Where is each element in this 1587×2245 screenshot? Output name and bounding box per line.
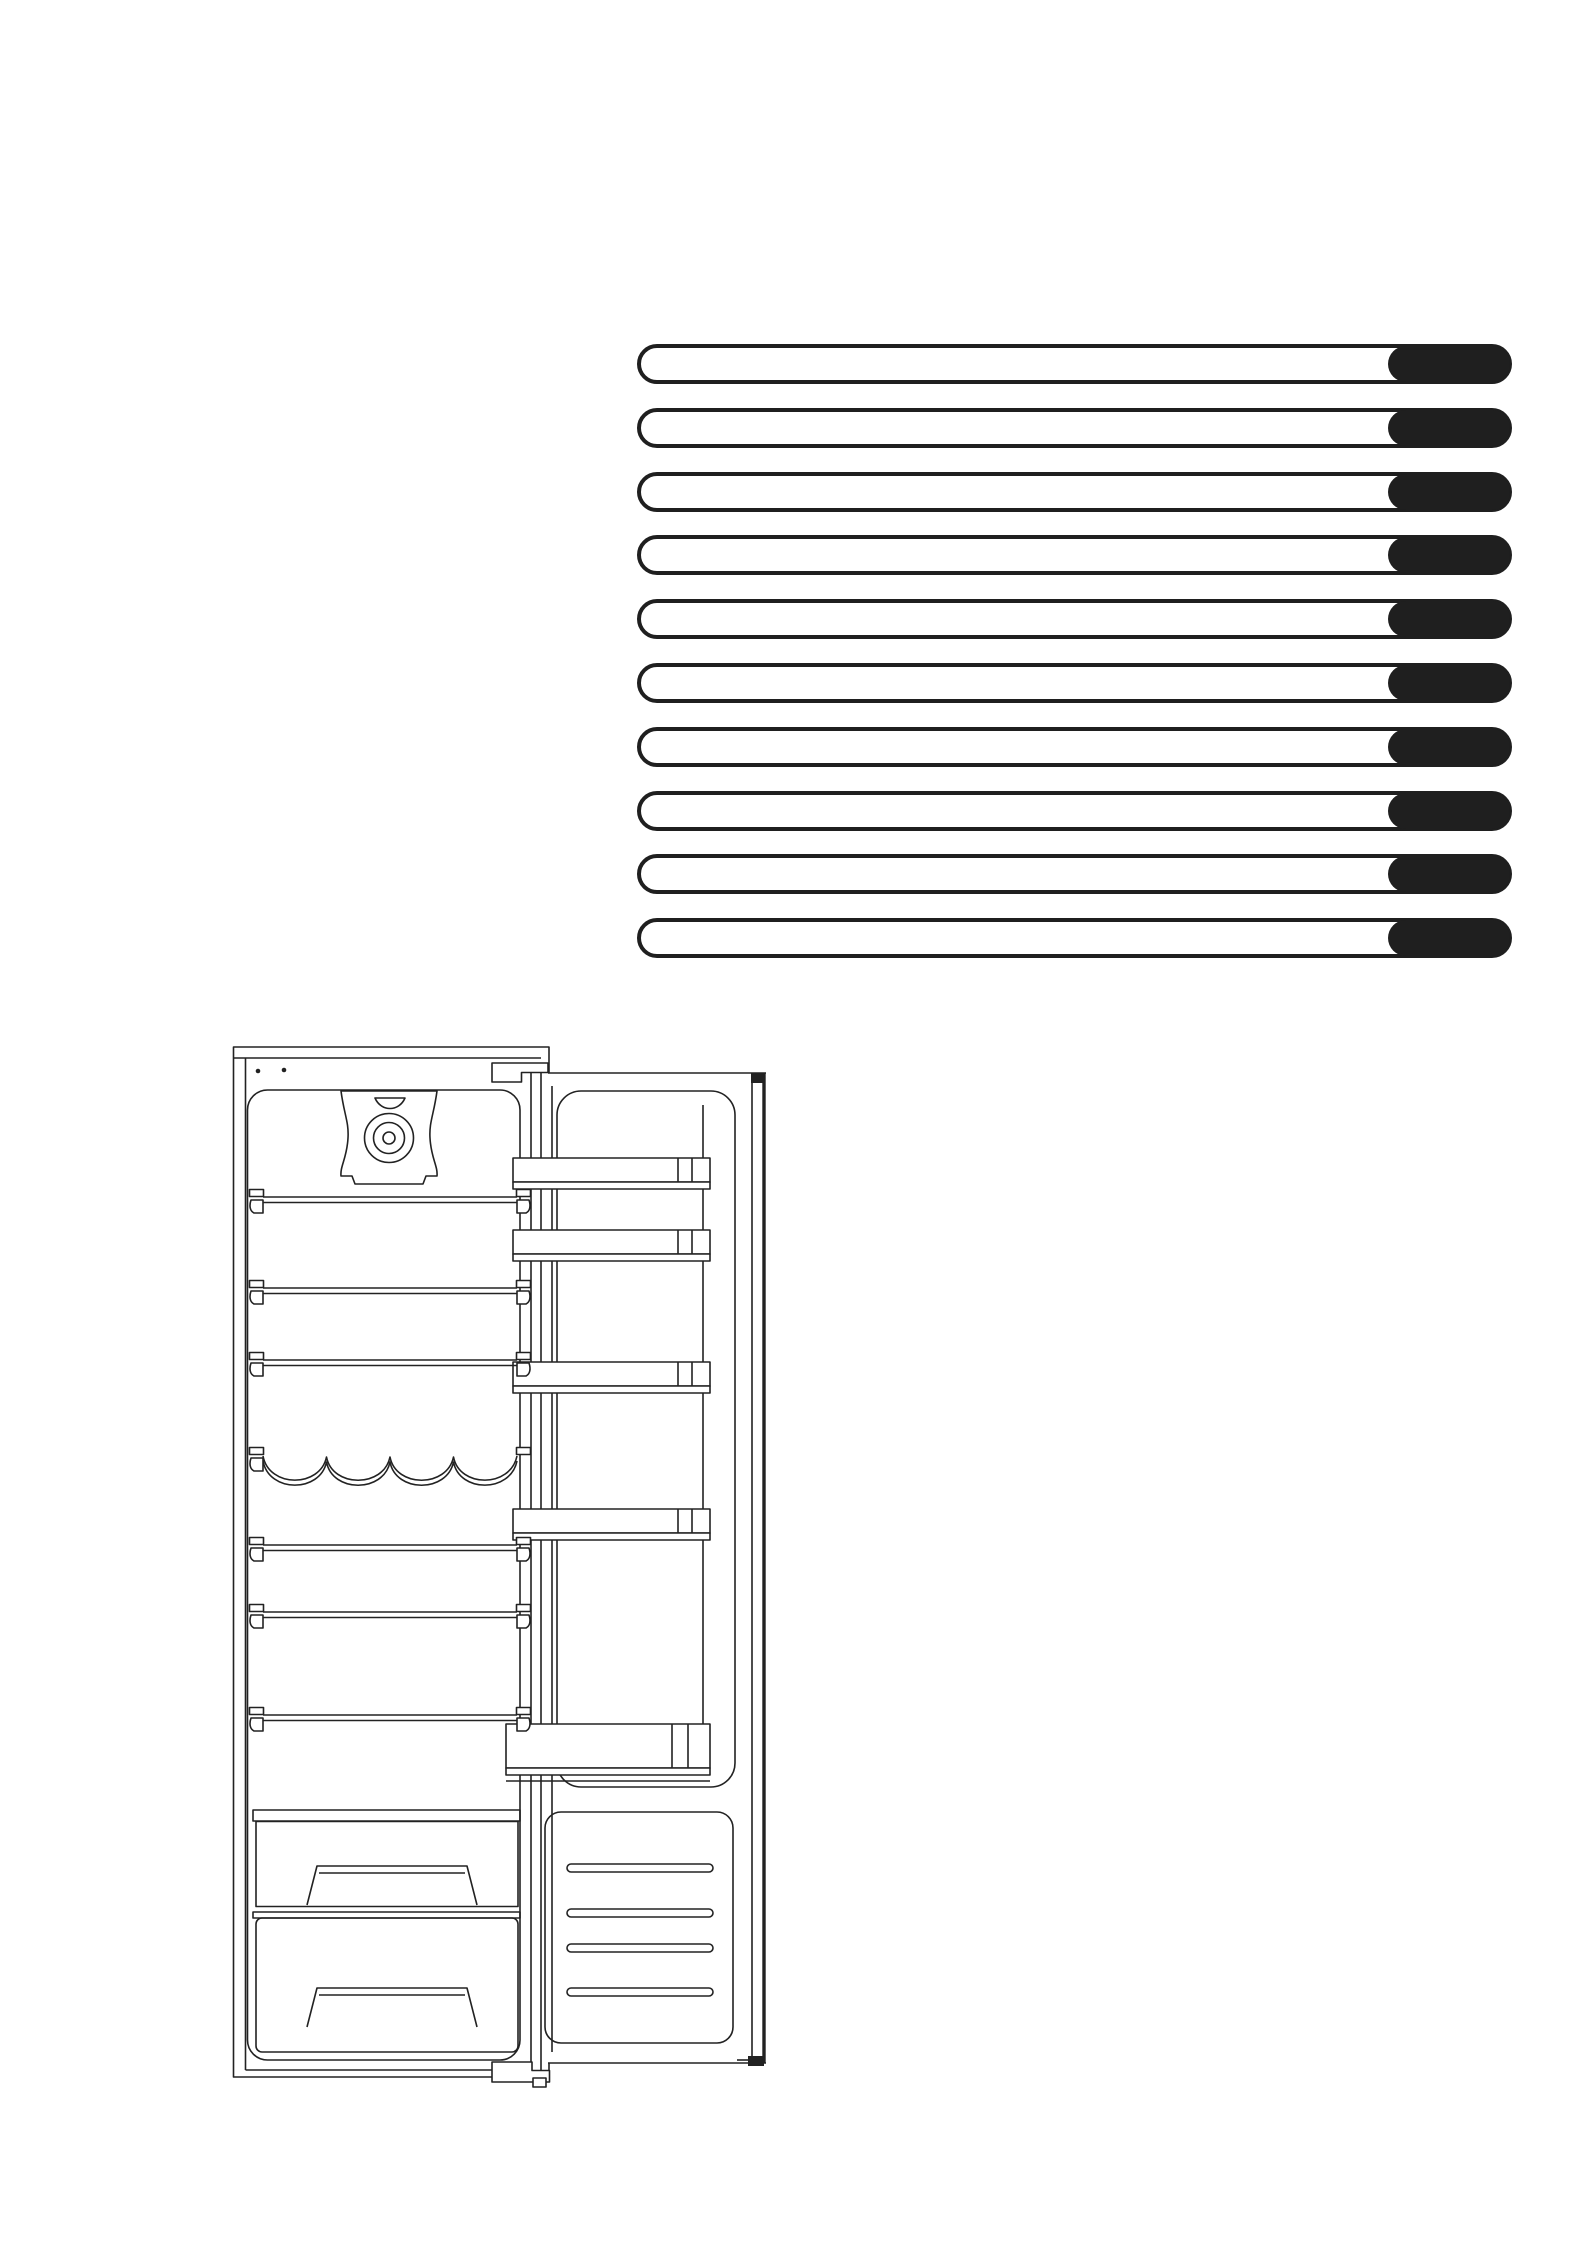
shelf-left-hook xyxy=(250,1200,263,1213)
door-balcony-bottom xyxy=(506,1724,710,1768)
vent-slot xyxy=(567,1909,713,1917)
lower-drawer-handle xyxy=(307,1988,477,2027)
ventilation-grille xyxy=(545,1812,733,2043)
placeholder-bar xyxy=(637,791,1512,831)
placeholder-bar xyxy=(637,344,1512,384)
balcony-lip xyxy=(513,1182,710,1189)
wine-rack-wave-top xyxy=(263,1456,517,1480)
shelf-left-hook xyxy=(250,1615,263,1628)
placeholder-bar xyxy=(637,727,1512,767)
wine-rack-left-tab xyxy=(250,1448,264,1455)
shelf-right-tab xyxy=(517,1190,531,1197)
drawer-mid-rail xyxy=(253,1912,520,1918)
crisper-drawers xyxy=(253,1810,520,2052)
placeholder-bar-cap xyxy=(1388,665,1510,701)
shelf-left-tab xyxy=(250,1281,264,1288)
door-balcony xyxy=(513,1362,710,1386)
placeholder-bar xyxy=(637,918,1512,958)
wine-rack-right-tab xyxy=(517,1448,531,1455)
fixing-hole-dot xyxy=(256,1069,261,1074)
interior-liner xyxy=(248,1090,521,2060)
shelf-right-tab xyxy=(517,1605,531,1612)
shelf-left-hook xyxy=(250,1291,263,1304)
shelf-left-hook xyxy=(250,1548,263,1561)
bottom-hinge-foot xyxy=(533,2078,546,2087)
wine-rack-wave-bottom xyxy=(263,1461,517,1485)
placeholder-bar xyxy=(637,599,1512,639)
door-bottom-hinge-pin xyxy=(748,2056,764,2066)
cabinet-outline xyxy=(234,1047,550,2077)
vent-slot xyxy=(567,1988,713,1996)
shelf-right-hook xyxy=(517,1200,530,1213)
placeholder-bar-cap xyxy=(1388,410,1510,446)
vent-slot xyxy=(567,1864,713,1872)
wine-bottle-rack xyxy=(250,1448,531,1486)
placeholder-bar-cap xyxy=(1388,856,1510,892)
placeholder-bar-cap xyxy=(1388,474,1510,510)
balcony-lip xyxy=(506,1768,710,1775)
shelf-left-tab xyxy=(250,1605,264,1612)
cabinet xyxy=(234,1047,550,2077)
vent-slots xyxy=(567,1864,713,1996)
balcony-lip xyxy=(513,1254,710,1261)
shelf-left-hook xyxy=(250,1718,263,1731)
placeholder-bar xyxy=(637,408,1512,448)
balcony-lip xyxy=(513,1386,710,1393)
door-liner xyxy=(557,1091,735,1787)
shelf-right-tab xyxy=(517,1281,531,1288)
shelf-left-hook xyxy=(250,1363,263,1376)
upper-drawer-handle xyxy=(307,1866,477,1905)
shelf-right-tab xyxy=(517,1353,531,1360)
shelf-left-tab xyxy=(250,1708,264,1715)
placeholder-bar-cap xyxy=(1388,601,1510,637)
door-balconies xyxy=(506,1158,710,1781)
shelf-left-tab xyxy=(250,1353,264,1360)
vent-slot xyxy=(567,1944,713,1952)
door-balcony xyxy=(513,1509,710,1533)
crisper-drawer-lower xyxy=(256,1918,518,2052)
shelf-right-hook xyxy=(517,1718,530,1731)
shelf-left-tab xyxy=(250,1538,264,1545)
shelf-right-hook xyxy=(517,1615,530,1628)
door-balcony xyxy=(513,1158,710,1182)
fixing-hole-dot xyxy=(282,1068,287,1073)
manual-page xyxy=(0,0,1587,2245)
top-hinge-bracket xyxy=(492,1063,548,1082)
shelf-right-tab xyxy=(517,1708,531,1715)
shelf-left-tab xyxy=(250,1190,264,1197)
refrigerator-door xyxy=(541,1063,766,2070)
shelf-right-hook xyxy=(517,1291,530,1304)
shelf-right-hook xyxy=(517,1363,530,1376)
placeholder-bar xyxy=(637,854,1512,894)
placeholder-bar-cap xyxy=(1388,729,1510,765)
door-top-hinge-pin xyxy=(751,1073,765,1083)
placeholder-bar-cap xyxy=(1388,537,1510,573)
shelf-right-hook xyxy=(517,1548,530,1561)
balcony-lip xyxy=(513,1533,710,1540)
placeholder-bar-cap xyxy=(1388,920,1510,956)
crisper-drawer-upper xyxy=(256,1822,518,1907)
placeholder-bar-cap xyxy=(1388,346,1510,382)
refrigerator-illustration xyxy=(225,1035,795,2100)
placeholder-bar xyxy=(637,472,1512,512)
wine-rack-left-hook xyxy=(250,1458,263,1471)
lamp-ring-outer xyxy=(365,1114,414,1163)
drawer-top-rail xyxy=(253,1810,520,1821)
placeholder-bar xyxy=(637,535,1512,575)
placeholder-bar-cap xyxy=(1388,793,1510,829)
placeholder-bar xyxy=(637,663,1512,703)
shelf-right-tab xyxy=(517,1538,531,1545)
door-balcony xyxy=(513,1230,710,1254)
thermostat-lamp-housing xyxy=(341,1091,437,1184)
